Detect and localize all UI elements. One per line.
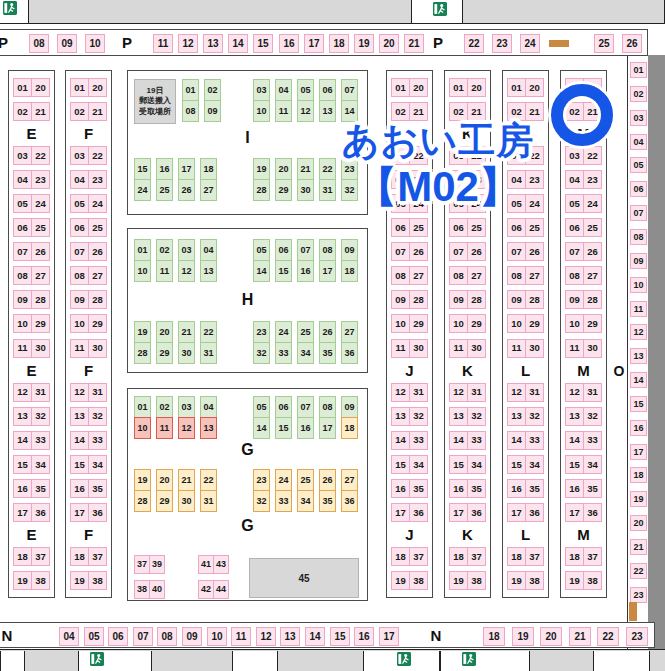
column-label: L <box>521 527 530 542</box>
booth-pair: 1736 <box>70 503 107 522</box>
booth-cell: 37 <box>467 547 486 566</box>
booth-cell: 07 <box>449 242 468 261</box>
booth-pair: 1726 <box>178 158 195 201</box>
booth-cell: 07 <box>297 396 314 418</box>
booth-group: 0110021103120413 <box>134 396 217 439</box>
booth-cell: 02 <box>156 396 173 418</box>
booth-pair: 2029 <box>275 158 292 201</box>
column-label: K <box>462 527 473 542</box>
booth-cell: 42 <box>198 580 214 599</box>
booth-pair: 2130 <box>297 158 314 201</box>
booth-cell: 19 <box>449 571 468 590</box>
highlight-circle <box>551 84 613 146</box>
booth-pair: 0322 <box>565 146 602 165</box>
booth-cell: 20 <box>31 78 50 97</box>
booth-cell: 11 <box>156 417 173 439</box>
booth-cell: 32 <box>253 490 270 512</box>
booth-pair: 2332 <box>253 469 270 512</box>
booth-cell: 10 <box>134 260 151 282</box>
booth-cell: 33 <box>275 490 292 512</box>
booth-cell: 18 <box>565 547 584 566</box>
column-label: K <box>462 363 473 378</box>
booth-pair: 0120 <box>449 78 486 97</box>
block-H: 011002110312041305140615071608170918H192… <box>127 228 368 373</box>
booth-pair: 1938 <box>391 571 428 590</box>
booth-cell: 17 <box>391 503 410 522</box>
booth-cell: 35 <box>583 479 602 498</box>
booth-cell: 27 <box>341 321 358 343</box>
booth-cell: 14 <box>507 431 526 450</box>
booth-cell: 26 <box>583 242 602 261</box>
booth-cell: 20 <box>88 78 107 97</box>
booth-cell: 19 <box>13 571 32 590</box>
booth-cell: 12 <box>391 383 410 402</box>
booth-pair: 1231 <box>70 383 107 402</box>
booth-pair: 1433 <box>565 431 602 450</box>
booth-cell: 12 <box>565 383 584 402</box>
booth-cell: 05 <box>70 194 89 213</box>
booth-pair: 1534 <box>565 455 602 474</box>
booth-cell: 09 <box>341 396 358 418</box>
booth-cell: 19 <box>134 321 151 343</box>
booth-cell: 03 <box>253 79 270 101</box>
booth-cell: 26 <box>88 242 107 261</box>
row-label: N <box>0 628 15 643</box>
booth-cell: 31 <box>200 490 217 512</box>
booth-pair: 1433 <box>13 431 50 450</box>
pickup-area-box: 19日郵送搬入受取場所 <box>134 79 176 124</box>
booth-cell: 36 <box>467 503 486 522</box>
booth-pair: 0221 <box>70 102 107 121</box>
booth-cell: 26 <box>178 179 195 201</box>
booth-pair: 1736 <box>565 503 602 522</box>
booth-cell: 28 <box>88 290 107 309</box>
booth-cell: 33 <box>31 431 50 450</box>
booth-cell: 07 <box>391 242 410 261</box>
booth-pair: 2130 <box>178 321 195 364</box>
booth-cell: 18 <box>341 417 358 439</box>
booth-cell: 07 <box>13 242 32 261</box>
booth-cell: 16 <box>565 479 584 498</box>
booth-cell: 22 <box>630 563 647 579</box>
booth-cell: 14 <box>70 431 89 450</box>
booth-cell: 03 <box>13 146 32 165</box>
booth-cell: 08 <box>507 266 526 285</box>
booth-pair: 1332 <box>70 407 107 426</box>
booth-cell: 17 <box>319 260 336 282</box>
booth-cell: 02 <box>507 102 526 121</box>
booth-cell: 36 <box>583 503 602 522</box>
booth-cell: 19 <box>512 627 534 646</box>
booth-pair: 0110 <box>134 396 151 439</box>
booth-cell: 19 <box>134 469 151 491</box>
booth-pair: 0827 <box>391 266 428 285</box>
booth-pair: 2736 <box>341 321 358 364</box>
booth-cell: 01 <box>13 78 32 97</box>
venue-map: あおい工房 【M02】 P080910P11121314151617181920… <box>0 0 665 671</box>
booth-cell: 09 <box>204 100 221 122</box>
booth-cell: 34 <box>31 455 50 474</box>
booth-cell: 15 <box>275 260 292 282</box>
exit-icon <box>433 2 447 16</box>
booth-pair: 0322 <box>70 146 107 165</box>
booth-cell: 18 <box>13 547 32 566</box>
booth-pair: 0716 <box>297 239 314 282</box>
booth-cell: 30 <box>88 339 107 358</box>
exit-icon <box>90 652 104 666</box>
booth-cell: 28 <box>134 342 151 364</box>
booth-pair: 0918 <box>341 396 358 439</box>
booth-pair: 0714 <box>341 79 358 122</box>
booth-cell: 29 <box>583 314 602 333</box>
booth-pair: 1433 <box>391 431 428 450</box>
booth-pair: 0221 <box>449 102 486 121</box>
booth-group: 03100411051206130714 <box>253 79 358 122</box>
booth-cell: 06 <box>449 218 468 237</box>
booth-cell: 21 <box>630 539 647 555</box>
booth-cell: 21 <box>409 102 428 121</box>
booth-cell: 16 <box>297 417 314 439</box>
booth-cell: 02 <box>391 102 410 121</box>
booth-cell: 33 <box>88 431 107 450</box>
booth-pair: 0625 <box>391 218 428 237</box>
booth-pair: 1534 <box>449 455 486 474</box>
booth-pair: 0726 <box>391 242 428 261</box>
booth-pair: 1736 <box>507 503 544 522</box>
booth-pair: 0110 <box>134 239 151 282</box>
booth-cell: 09 <box>341 239 358 261</box>
booth-cell: 24 <box>520 34 540 53</box>
booth-cell: 33 <box>275 342 292 364</box>
booth-cell: 19 <box>70 571 89 590</box>
booth-cell: 30 <box>178 490 195 512</box>
booth-cell: 25 <box>31 218 50 237</box>
booth-cell: 34 <box>525 455 544 474</box>
booth-cell: 01 <box>630 62 647 78</box>
booth-pair: 2029 <box>156 321 173 364</box>
booth-cell: 14 <box>253 417 270 439</box>
booth-cell: 28 <box>31 290 50 309</box>
booth-cell: 37 <box>31 547 50 566</box>
booth-cell: 31 <box>88 383 107 402</box>
booth-cell: 10 <box>13 314 32 333</box>
booth-cell: 36 <box>525 503 544 522</box>
booth-cell: 25 <box>525 218 544 237</box>
booth-pair: 1231 <box>507 383 544 402</box>
booth-cell: 18 <box>70 547 89 566</box>
booth-group: 23322433253426352736 <box>253 469 358 512</box>
booth-cell: 34 <box>583 455 602 474</box>
booth-cell: 20 <box>540 627 562 646</box>
booth-cell: 28 <box>409 290 428 309</box>
booth-cell: 21 <box>178 469 195 491</box>
booth-cell: 09 <box>57 34 77 53</box>
exit-icon <box>3 1 17 15</box>
booth-cell: 30 <box>31 339 50 358</box>
booth-cell: 32 <box>583 407 602 426</box>
booth-pair: 1433 <box>70 431 107 450</box>
booth-pair: 1130 <box>565 339 602 358</box>
booth-cell: 33 <box>583 431 602 450</box>
booth-cell: 19 <box>507 571 526 590</box>
booth-cell: 22 <box>31 146 50 165</box>
booth-cell: 29 <box>275 179 292 201</box>
column-label: F <box>84 126 93 141</box>
booth-pair: 1827 <box>200 158 217 201</box>
booth-cell: 18 <box>449 547 468 566</box>
booth-cell: 12 <box>297 100 314 122</box>
booth-pair: 1524 <box>134 158 151 201</box>
booth-cell: 15 <box>13 455 32 474</box>
booth-cell: 05 <box>565 194 584 213</box>
booth-pair: 1635 <box>449 479 486 498</box>
annotation-booth-code: 【M02】 <box>328 166 548 208</box>
booth-pair: 1938 <box>13 571 50 590</box>
booth-cell: 27 <box>88 266 107 285</box>
booth-pair: 0211 <box>156 396 173 439</box>
booth-cell: 13 <box>70 407 89 426</box>
booth-pair: 0928 <box>391 290 428 309</box>
booth-cell: 24 <box>88 194 107 213</box>
booth-pair: 1928 <box>134 321 151 364</box>
booth-cell: 09 <box>182 627 202 646</box>
booth-cell: 12 <box>178 260 195 282</box>
booth-cell: 08 <box>182 100 199 122</box>
booth-pair: 0625 <box>507 218 544 237</box>
booth-pair: 0817 <box>319 396 336 439</box>
top-wall <box>0 0 665 24</box>
row-N: N0405060708091011121314151617N1819202122… <box>0 622 655 648</box>
booth-cell: 35 <box>319 490 336 512</box>
booth-cell: 30 <box>297 179 314 201</box>
booth-cell: 10 <box>85 34 105 53</box>
booth-pair: 1837 <box>449 547 486 566</box>
booth-cell: 22 <box>200 321 217 343</box>
booth-cell: 31 <box>31 383 50 402</box>
booth-cell: 15 <box>70 455 89 474</box>
booth-cell: 27 <box>31 266 50 285</box>
booth-cell: 23 <box>253 321 270 343</box>
booth-pair: 1130 <box>70 339 107 358</box>
booth-cell: 10 <box>207 627 227 646</box>
booth-pair: 0120 <box>70 78 107 97</box>
booth-pair: 4244 <box>198 580 229 599</box>
booth-cell: 09 <box>507 290 526 309</box>
booth-pair: 0209 <box>204 79 221 122</box>
booth-cell: 14 <box>341 100 358 122</box>
booth-cell: 15 <box>449 455 468 474</box>
booth-pair: 0726 <box>449 242 486 261</box>
booth-pair: 0716 <box>297 396 314 439</box>
booth-cell: 36 <box>31 503 50 522</box>
pickup-area-line: 受取場所 <box>139 107 171 117</box>
booth-pair: 1332 <box>507 407 544 426</box>
booth-cell: 10 <box>565 314 584 333</box>
booth-cell: 04 <box>200 239 217 261</box>
booth-cell: 16 <box>391 479 410 498</box>
booth-cell: 24 <box>134 179 151 201</box>
booth-cell: 25 <box>467 218 486 237</box>
booth-cell: 31 <box>200 342 217 364</box>
booth-cell: 03 <box>565 146 584 165</box>
booth-pair: 1029 <box>565 314 602 333</box>
booth-cell: 12 <box>178 417 195 439</box>
booth-cell: 16 <box>279 34 299 53</box>
booth-cell: 38 <box>134 580 150 599</box>
booth-cell: 27 <box>341 469 358 491</box>
booth-cell: 13 <box>200 417 217 439</box>
booth-cell: 36 <box>341 490 358 512</box>
booth-cell: 05 <box>13 194 32 213</box>
booth-cell: 03 <box>178 239 195 261</box>
booth-cell: 17 <box>379 627 399 646</box>
booth-cell: 09 <box>630 253 647 269</box>
booth-cell: 04 <box>59 627 79 646</box>
booth-pair: 1231 <box>565 383 602 402</box>
booth-cell: 22 <box>464 34 484 53</box>
booth-cell: 11 <box>13 339 32 358</box>
booth-cell: 35 <box>467 479 486 498</box>
booth-cell: 03 <box>630 110 647 126</box>
row-label: P <box>119 35 135 50</box>
booth-cell: 27 <box>583 266 602 285</box>
booth-pair: 2231 <box>200 321 217 364</box>
booth-cell: 36 <box>409 503 428 522</box>
row-label: P <box>430 35 446 50</box>
booth-pair: 2534 <box>297 469 314 512</box>
booth-cell: 04 <box>70 170 89 189</box>
booth-group: 0110021103120413 <box>134 239 217 282</box>
exit-icon <box>462 652 476 666</box>
booth-cell: 01 <box>70 78 89 97</box>
booth-pair: 1332 <box>449 407 486 426</box>
column-label: M <box>577 363 590 378</box>
row-P: P080910P1112131415161718192021P222324252… <box>0 29 648 56</box>
booth-cell: 32 <box>31 407 50 426</box>
booth-cell: 12 <box>630 324 647 340</box>
booth-pair: 0411 <box>275 79 292 122</box>
booth-cell: 02 <box>204 79 221 101</box>
booth-cell: 10 <box>449 314 468 333</box>
booth-pair: 0108 <box>182 79 199 122</box>
booth-pair: 0928 <box>70 290 107 309</box>
booth-pair: 1534 <box>507 455 544 474</box>
booth-pair: 0827 <box>449 266 486 285</box>
booth-cell: 14 <box>630 372 647 388</box>
booth-cell: 12 <box>178 34 198 53</box>
booth-pair: 0221 <box>507 102 544 121</box>
booth-group: 01080209 <box>182 79 221 122</box>
booth-cell: 17 <box>319 417 336 439</box>
booth-cell: 11 <box>449 339 468 358</box>
booth-cell: 01 <box>507 78 526 97</box>
booth-cell: 13 <box>13 407 32 426</box>
booth-cell: 38 <box>88 571 107 590</box>
column-label: L <box>521 363 530 378</box>
booth-cell: 11 <box>275 100 292 122</box>
booth-pair: 0120 <box>13 78 50 97</box>
booth-cell: 34 <box>297 490 314 512</box>
booth-cell: 30 <box>583 339 602 358</box>
booth-cell: 13 <box>565 407 584 426</box>
booth-cell: 15 <box>630 396 647 412</box>
door-marker <box>549 40 569 47</box>
booth-cell: 08 <box>630 229 647 245</box>
booth-pair: 0928 <box>449 290 486 309</box>
booth-pair: 1231 <box>449 383 486 402</box>
booth-cell: 20 <box>525 78 544 97</box>
booth-cell: 27 <box>200 179 217 201</box>
booth-pair: 2029 <box>156 469 173 512</box>
booth-cell: 35 <box>409 479 428 498</box>
booth-cell: 14 <box>228 34 248 53</box>
booth-cell: 21 <box>31 102 50 121</box>
booth-pair: 0512 <box>297 79 314 122</box>
booth-cell: 23 <box>31 170 50 189</box>
booth-cell: 27 <box>467 266 486 285</box>
booth-cell: 27 <box>525 266 544 285</box>
booth-pair: 1736 <box>391 503 428 522</box>
row-label: N <box>428 628 444 643</box>
booth-group: 1928202921302231 <box>134 469 217 512</box>
booth-cell: 16 <box>507 479 526 498</box>
booth-pair: 0310 <box>253 79 270 122</box>
booth-cell: 31 <box>409 383 428 402</box>
booth-pair: 1837 <box>391 547 428 566</box>
booth-cell: 05 <box>253 396 270 418</box>
booth-cell: 06 <box>275 239 292 261</box>
booth-pair: 1332 <box>391 407 428 426</box>
booth-cell: 34 <box>409 455 428 474</box>
booth-pair: 1635 <box>391 479 428 498</box>
row-label: O <box>612 364 626 378</box>
booth-cell: 11 <box>565 339 584 358</box>
booth-cell: 08 <box>391 266 410 285</box>
booth-cell: 20 <box>275 158 292 180</box>
booth-cell: 07 <box>630 205 647 221</box>
booth-cell: 29 <box>467 314 486 333</box>
booth-pair: 0817 <box>319 239 336 282</box>
booth-cell: 20 <box>156 469 173 491</box>
booth-cell: 26 <box>409 242 428 261</box>
booth-cell: 18 <box>483 627 505 646</box>
booth-cell: 16 <box>449 479 468 498</box>
booth-cell: 02 <box>630 86 647 102</box>
booth-cell: 01 <box>134 239 151 261</box>
booth-cell: 13 <box>319 100 336 122</box>
booth-cell: 13 <box>630 348 647 364</box>
booth-cell: 32 <box>88 407 107 426</box>
booth-pair: 2433 <box>275 321 292 364</box>
booth-pair: 1635 <box>70 479 107 498</box>
booth-cell: 11 <box>70 339 89 358</box>
booth-cell: 06 <box>630 181 647 197</box>
booth-cell: 12 <box>256 627 276 646</box>
booth-pair: 1534 <box>391 455 428 474</box>
booth-cell: 28 <box>134 490 151 512</box>
booth-cell: 29 <box>31 314 50 333</box>
booth-pair: 0918 <box>341 239 358 282</box>
door-segment <box>593 651 650 671</box>
booth-cell: 15 <box>507 455 526 474</box>
column-label: F <box>84 363 93 378</box>
booth-pair: 1736 <box>449 503 486 522</box>
booth-pair: 0221 <box>13 102 50 121</box>
booth-cell: 38 <box>525 571 544 590</box>
booth-cell: 28 <box>467 290 486 309</box>
booth-pair: 1130 <box>507 339 544 358</box>
booth-cell: 18 <box>507 547 526 566</box>
